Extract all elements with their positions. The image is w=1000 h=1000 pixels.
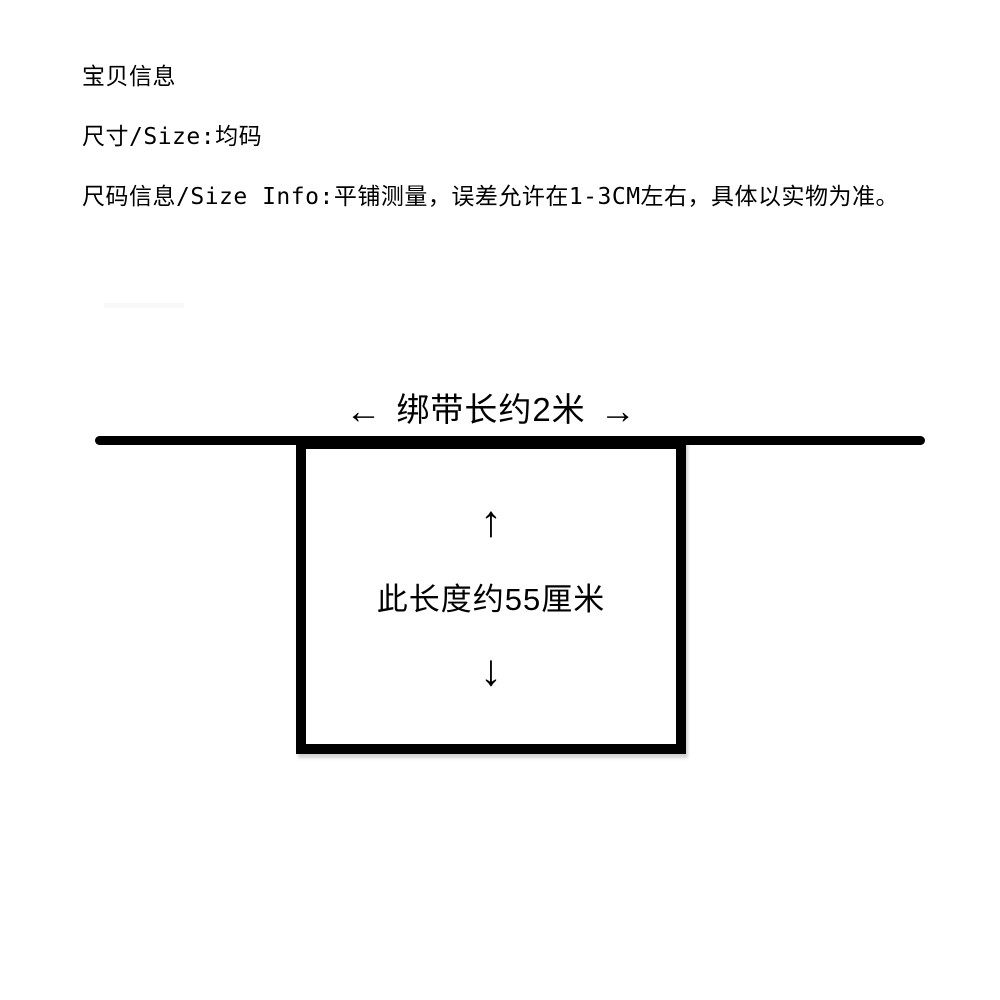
strap-length-label: ←绑带长约2米→ bbox=[296, 383, 686, 432]
down-arrow-icon: ↓ bbox=[480, 649, 502, 693]
vertical-length-label: 此长度约55厘米 bbox=[377, 574, 605, 619]
garment-rectangle: ↑ 此长度约55厘米 ↓ bbox=[296, 439, 686, 754]
faint-artifact bbox=[104, 303, 184, 308]
size-info-text: 尺码信息/Size Info:平铺测量，误差允许在1-3CM左右，具体以实物为准… bbox=[82, 177, 899, 211]
size-info-page: 宝贝信息 尺寸/Size:均码 尺码信息/Size Info:平铺测量，误差允许… bbox=[0, 0, 1000, 1000]
right-arrow-icon: → bbox=[600, 390, 637, 431]
up-arrow-icon: ↑ bbox=[480, 500, 502, 544]
size-label: 尺寸/Size:均码 bbox=[82, 117, 262, 151]
page-title: 宝贝信息 bbox=[82, 57, 176, 91]
left-arrow-icon: ← bbox=[345, 390, 382, 431]
strap-length-text: 绑带长约2米 bbox=[396, 391, 585, 428]
